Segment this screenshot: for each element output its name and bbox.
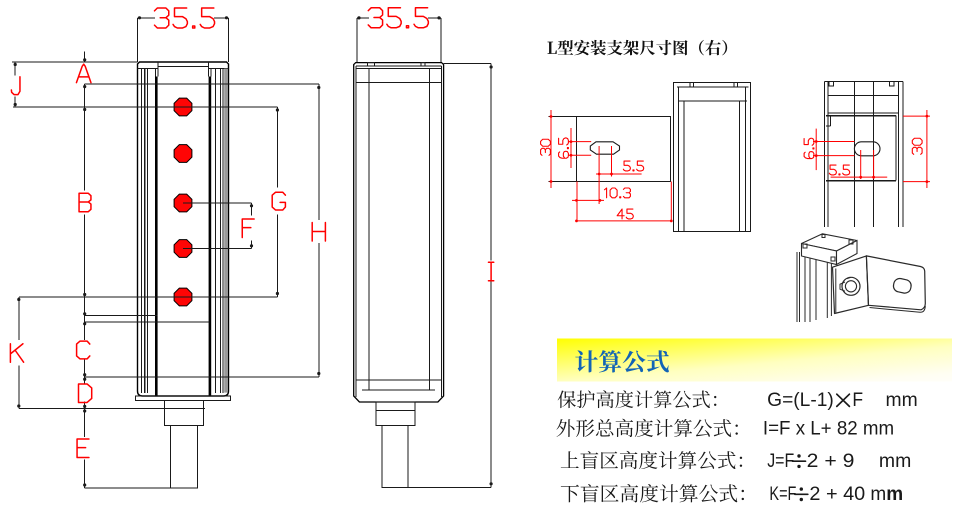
svg-text:I=F x L+ 82 mm: I=F x L+ 82 mm <box>763 419 894 440</box>
svg-text:m: m <box>886 484 903 505</box>
svg-text:J=F: J=F <box>767 451 794 472</box>
svg-text:K=F: K=F <box>769 484 796 505</box>
svg-text:2 + 40: 2 + 40 <box>809 484 865 505</box>
svg-text:F: F <box>852 390 863 411</box>
svg-text:m: m <box>870 484 886 505</box>
svg-text:mm: mm <box>886 390 918 411</box>
svg-text:2 + 9: 2 + 9 <box>807 451 855 472</box>
svg-text:G=(L-1): G=(L-1) <box>767 390 834 411</box>
svg-text:mm: mm <box>879 451 911 472</box>
